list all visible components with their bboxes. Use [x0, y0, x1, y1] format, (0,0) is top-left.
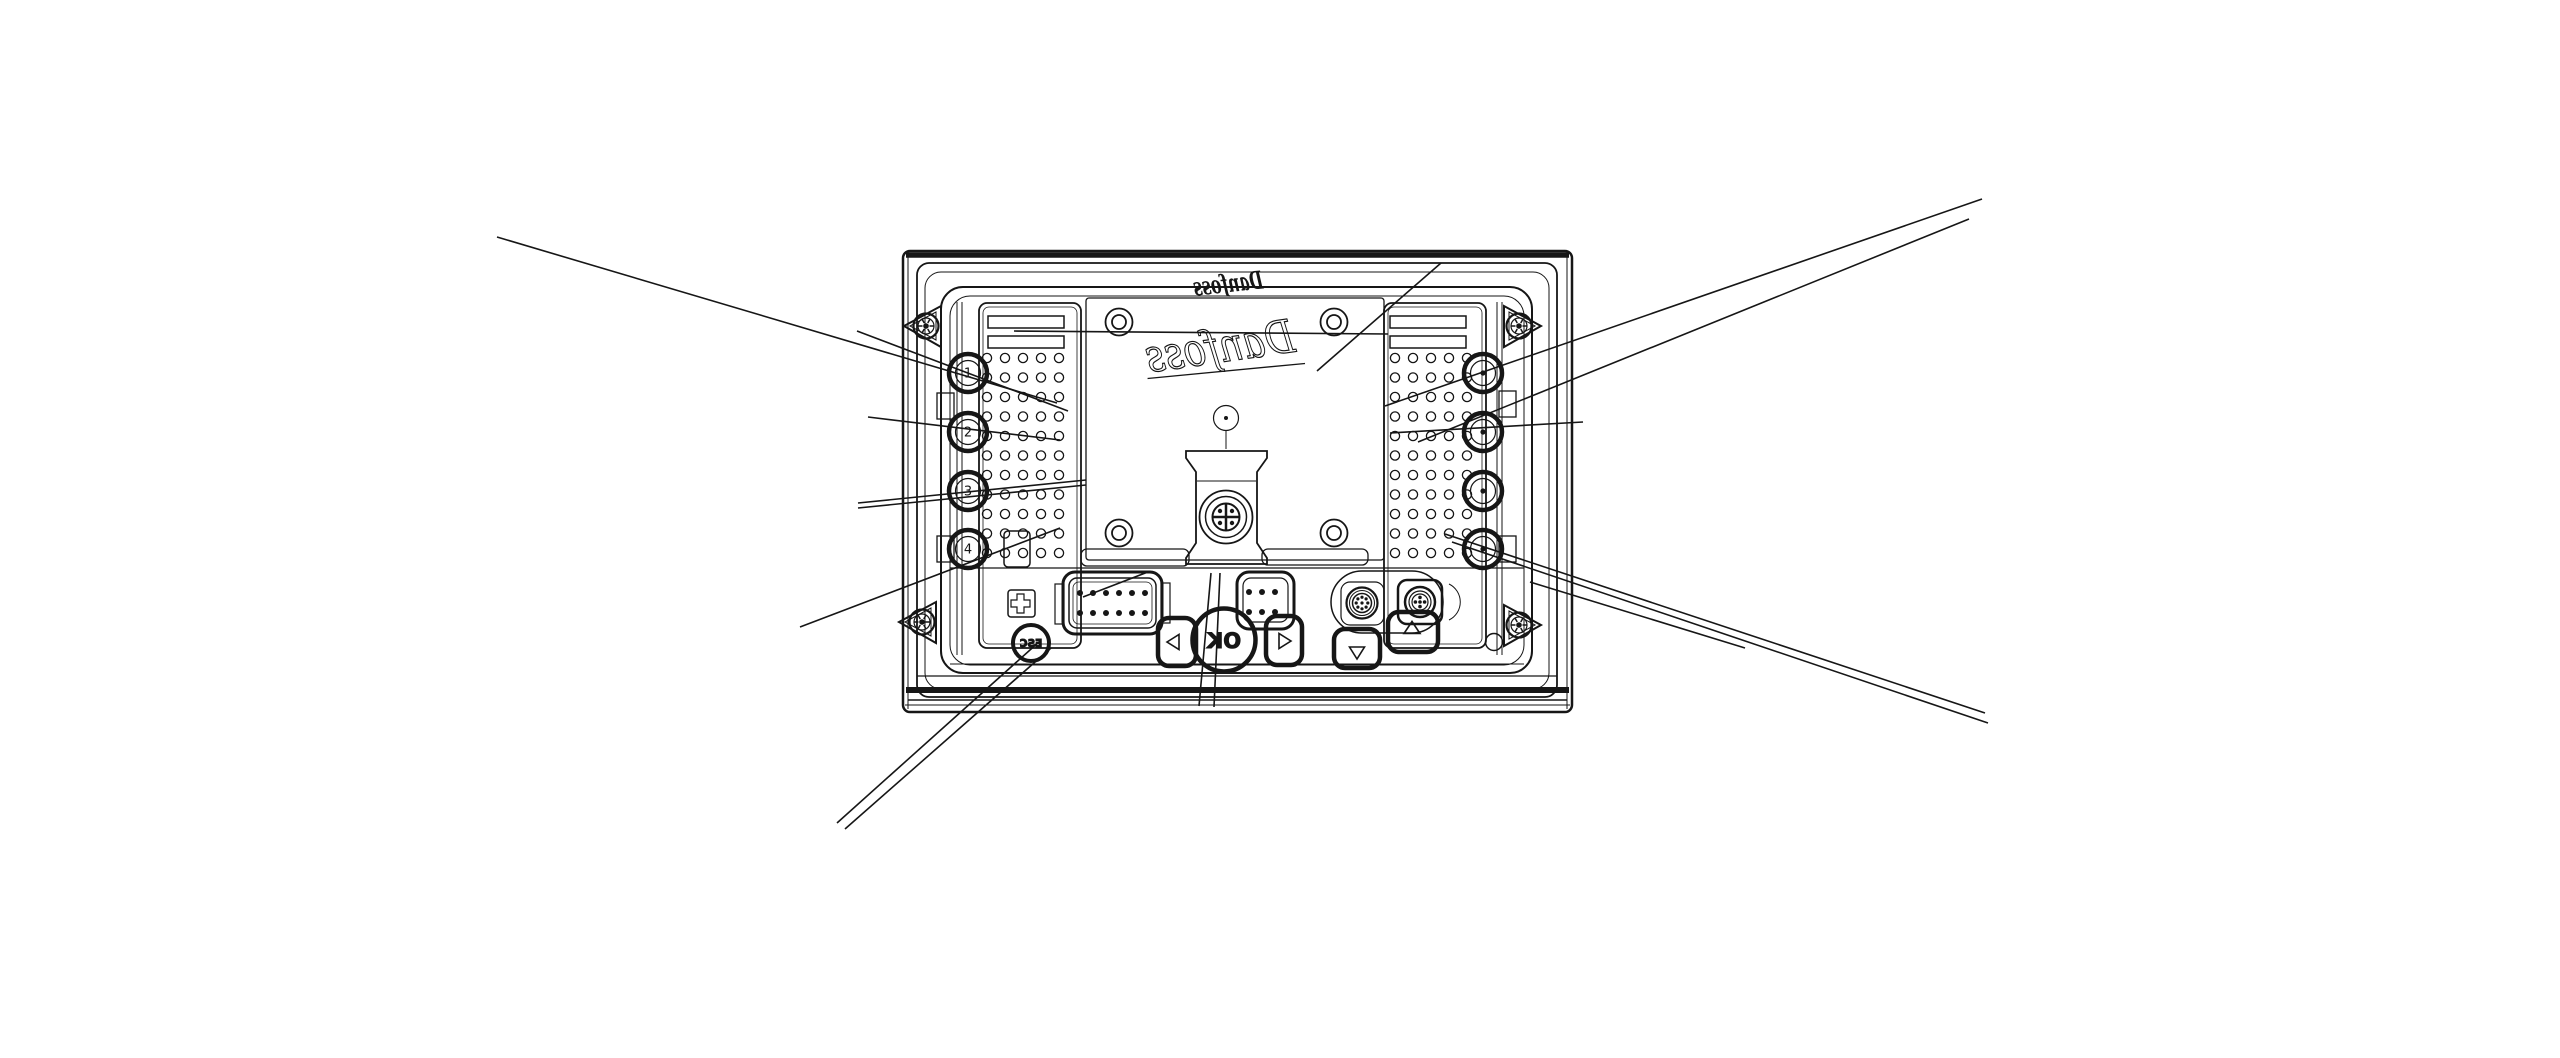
vent-hole: [1444, 412, 1453, 421]
plate-bottom-tab-right: [1262, 549, 1368, 565]
torx-spoke: [918, 616, 920, 619]
knockout-number: 4: [964, 543, 972, 558]
vent-hole: [1390, 412, 1399, 421]
connector-pin: [1355, 601, 1358, 604]
left-arrow-button-ghost: [1158, 618, 1196, 666]
vent-hole: [1408, 373, 1417, 382]
vent-hole: [1390, 548, 1399, 557]
vent-hole: [1390, 490, 1399, 499]
vent-hole: [1018, 353, 1027, 362]
vent-hole: [1054, 470, 1063, 479]
vent-hole: [1444, 373, 1453, 382]
vent-hole: [1390, 509, 1399, 518]
connector-pin: [1360, 596, 1363, 599]
vent-hole: [1036, 490, 1045, 499]
connector-pin: [1423, 600, 1427, 604]
torx-spoke: [918, 625, 920, 628]
mounting-hole-top-right-inner: [1327, 315, 1341, 329]
connector-pin: [1418, 600, 1422, 604]
vent-hole: [1426, 412, 1435, 421]
connector-pin: [1366, 601, 1369, 604]
connector-pin: [1116, 610, 1122, 616]
vent-hole: [1462, 509, 1471, 518]
torx-spoke: [1515, 320, 1517, 323]
vent-hole: [1426, 451, 1435, 460]
vent-hole: [1000, 470, 1009, 479]
vent-hole: [1426, 529, 1435, 538]
vent-hole: [1462, 392, 1471, 401]
knockout-center-mark: [1480, 429, 1485, 434]
vent-hole: [1390, 353, 1399, 362]
vent-hole: [1036, 431, 1045, 440]
vent-hole: [1426, 490, 1435, 499]
vent-hole: [1426, 509, 1435, 518]
vent-hole: [1054, 412, 1063, 421]
figure-canvas: 1234 Danfoss: [0, 0, 2560, 1058]
vent-hole: [1462, 451, 1471, 460]
mounting-hole-bottom-left: [1106, 520, 1133, 547]
center-screw-dot: [1218, 509, 1222, 513]
vent-hole: [1018, 451, 1027, 460]
vent-hole: [1000, 353, 1009, 362]
vent-hole: [1408, 470, 1417, 479]
vent-hole: [1036, 451, 1045, 460]
leader-line: [837, 641, 1040, 823]
mounting-hole-bottom-right-inner: [1327, 526, 1341, 540]
vent-hole: [1000, 412, 1009, 421]
mounting-hole-bottom-right: [1321, 520, 1348, 547]
vent-hole: [1018, 412, 1027, 421]
leader-line: [1083, 572, 1148, 597]
ok-button-label: OK: [1206, 629, 1241, 653]
connector-pin: [1090, 610, 1096, 616]
vent-hole: [1000, 451, 1009, 460]
corner-screw-center: [1516, 323, 1522, 329]
vent-hole: [1054, 353, 1063, 362]
down-arrow-button-ghost: [1334, 629, 1380, 668]
vent-hole: [1054, 509, 1063, 518]
vent-hole: [982, 392, 991, 401]
leader-line: [1445, 534, 1985, 713]
torx-spoke: [928, 320, 930, 323]
connector-pin: [1365, 606, 1368, 609]
vent-hole: [1036, 470, 1045, 479]
vent-hole: [1036, 548, 1045, 557]
drain-hole: [1486, 634, 1503, 651]
connector-pin: [1129, 610, 1135, 616]
torx-spoke: [928, 329, 930, 332]
knockout-center-mark: [1480, 488, 1485, 493]
vent-hole: [1054, 373, 1063, 382]
vent-hole: [1054, 548, 1063, 557]
center-screw-dot: [1218, 521, 1222, 525]
leader-line: [858, 480, 1086, 503]
torx-spoke: [1521, 619, 1523, 622]
plate-bottom-tab-left: [1081, 549, 1189, 566]
connector-pin: [1365, 597, 1368, 600]
right-arrow-button-ghost: [1266, 616, 1302, 665]
connector-pin: [1356, 606, 1359, 609]
vent-hole: [1036, 412, 1045, 421]
connector-pin: [1129, 590, 1135, 596]
center-screw-dot: [1230, 509, 1234, 513]
vent-hole: [1408, 509, 1417, 518]
orientation-mark-dot: [1224, 416, 1228, 420]
connector-pin: [1360, 607, 1363, 610]
connector-12pin-outer: [1063, 572, 1162, 634]
vent-hole: [1000, 373, 1009, 382]
corner-screw-center: [1516, 622, 1522, 628]
connector-pin: [1246, 609, 1252, 615]
vent-hole: [1426, 470, 1435, 479]
torx-spoke: [922, 329, 924, 332]
vent-hole: [1444, 353, 1453, 362]
connector-pin: [1142, 610, 1148, 616]
connector-pin: [1360, 601, 1363, 604]
brand-logos: Danfoss Danfoss: [1141, 265, 1305, 385]
center-screw-dot: [1230, 521, 1234, 525]
vent-hole: [1408, 431, 1417, 440]
vent-hole: [1000, 392, 1009, 401]
vent-hole: [1018, 373, 1027, 382]
leader-line: [1317, 263, 1441, 371]
mounting-hole-bottom-left-inner: [1112, 526, 1126, 540]
left-vent-slot-1: [988, 316, 1064, 328]
vent-hole: [1018, 548, 1027, 557]
vent-hole: [1390, 529, 1399, 538]
connector-pin: [1116, 590, 1122, 596]
torx-spoke: [922, 320, 924, 323]
corner-screw-center: [919, 619, 925, 625]
recess-arc: [1449, 584, 1460, 620]
vent-hole: [1390, 373, 1399, 382]
vent-hole: [982, 509, 991, 518]
connector-pin: [1259, 589, 1265, 595]
vent-hole: [1036, 373, 1045, 382]
vent-hole: [1018, 509, 1027, 518]
corner-screw-center: [923, 323, 929, 329]
torx-spoke: [1521, 329, 1523, 332]
connector-12pin-face: [1073, 582, 1152, 624]
leader-line: [1530, 582, 1745, 648]
vent-hole: [1444, 548, 1453, 557]
connector-pin: [1077, 610, 1083, 616]
left-rail-tab: [937, 393, 954, 419]
vent-hole: [1000, 490, 1009, 499]
vent-hole: [1444, 451, 1453, 460]
torx-spoke: [1521, 628, 1523, 631]
vent-hole: [1426, 373, 1435, 382]
vent-hole: [1444, 470, 1453, 479]
vent-hole: [1036, 353, 1045, 362]
connector-pin: [1418, 596, 1422, 600]
torx-spoke: [1515, 329, 1517, 332]
vent-hole: [1054, 490, 1063, 499]
vent-hole: [1426, 548, 1435, 557]
connector-pin: [1272, 589, 1278, 595]
connector-pin: [1103, 590, 1109, 596]
vent-hole: [1444, 431, 1453, 440]
vent-hole: [1390, 470, 1399, 479]
mounting-hole-top-left-inner: [1112, 315, 1126, 329]
right-vent-slot-2: [1390, 336, 1466, 348]
connector-pin: [1418, 605, 1422, 609]
vent-hole: [1054, 392, 1063, 401]
connector-pin: [1259, 609, 1265, 615]
torx-spoke: [1515, 619, 1517, 622]
connector-pin: [1103, 610, 1109, 616]
up-arrow-button-ghost: [1388, 612, 1438, 652]
left-vent-door: [979, 303, 1081, 648]
mounting-hole-top-right: [1321, 309, 1348, 336]
cable-knockouts: 1234: [949, 354, 1502, 568]
vent-hole: [1426, 353, 1435, 362]
vent-hole: [1390, 451, 1399, 460]
leader-line: [845, 648, 1051, 829]
down-arrow-icon: [1350, 647, 1365, 659]
connector-pin: [1246, 589, 1252, 595]
vent-hole: [1408, 490, 1417, 499]
leader-line: [497, 237, 1057, 403]
plus-icon: [1011, 594, 1030, 613]
vent-hole: [1408, 548, 1417, 557]
torx-spoke: [1521, 320, 1523, 323]
connector-pin: [1356, 597, 1359, 600]
vent-hole: [1408, 529, 1417, 538]
connector-pin: [1414, 600, 1418, 604]
left-vent-slot-2: [988, 336, 1064, 348]
vent-hole: [1390, 392, 1399, 401]
vent-hole: [1408, 353, 1417, 362]
right-vent-slot-1: [1390, 316, 1466, 328]
vent-hole: [1444, 509, 1453, 518]
left-arrow-icon: [1167, 635, 1179, 650]
knockout-number: 2: [964, 426, 972, 441]
rear-view-technical-drawing: 1234 Danfoss: [0, 0, 2560, 1058]
vent-hole: [1444, 490, 1453, 499]
vent-hole: [1408, 451, 1417, 460]
vent-hole: [982, 451, 991, 460]
vent-hole: [1018, 470, 1027, 479]
vent-hole: [1054, 451, 1063, 460]
vent-hole: [1036, 509, 1045, 518]
vent-hole: [1426, 392, 1435, 401]
vent-hole: [1444, 392, 1453, 401]
right-arrow-icon: [1279, 634, 1291, 649]
vent-hole: [1000, 509, 1009, 518]
connector-pin: [1142, 590, 1148, 596]
vent-hole: [1408, 412, 1417, 421]
torx-spoke: [1515, 628, 1517, 631]
connector-pin: [1077, 590, 1083, 596]
